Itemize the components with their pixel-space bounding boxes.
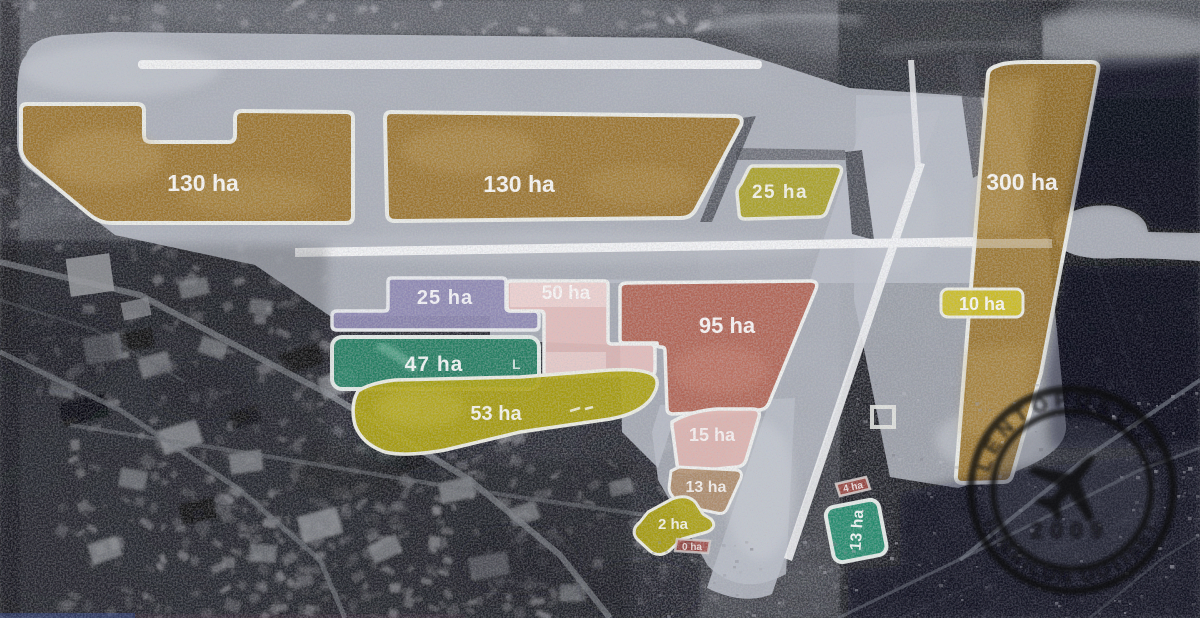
- svg-text:2009: 2009: [1030, 517, 1109, 543]
